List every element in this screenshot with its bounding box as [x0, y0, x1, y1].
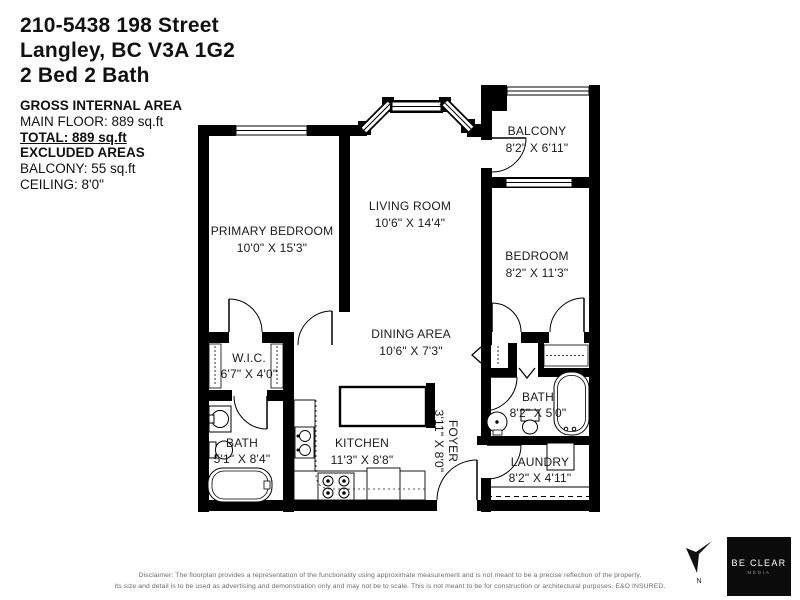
laundry-label: LAUNDRY: [511, 455, 570, 469]
primary-bedroom-window: [231, 125, 312, 136]
hall-opening-arrow: [472, 347, 481, 363]
hall-closet: [544, 345, 588, 366]
primary-bath-label: BATH: [226, 436, 258, 450]
primary-bedroom-dims: 10'0" X 15'3": [237, 241, 307, 255]
primary-bedroom-door: [229, 299, 262, 332]
primary-bedroom-label: PRIMARY BEDROOM: [211, 224, 334, 238]
floor-plan-drawing: PRIMARY BEDROOM 10'0" X 15'3" LIVING ROO…: [0, 0, 800, 600]
hallway-door: [298, 311, 332, 345]
bay-window-top: [390, 100, 443, 113]
bedroom-dims: 8'2" X 11'3": [506, 266, 569, 280]
living-room-label: LIVING ROOM: [369, 199, 451, 213]
bedroom-label: BEDROOM: [505, 249, 568, 263]
laundry-entry-lines: [487, 487, 589, 497]
bedroom-entry-door: [550, 298, 584, 332]
brand-logo-subtitle: MEDIA: [747, 570, 770, 575]
living-room-dims: 10'6" X 14'4": [375, 216, 445, 230]
dining-area-label: DINING AREA: [371, 327, 451, 341]
kitchen-island: [340, 387, 426, 426]
dining-area-dims: 10'6" X 7'3": [379, 344, 443, 358]
foyer-label: FOYER: [446, 420, 460, 462]
kitchen-dims: 11'3" X 8'8": [331, 453, 394, 467]
primary-bath-dims: 5'1" X 8'4": [214, 452, 271, 466]
kitchen-label: KITCHEN: [335, 436, 389, 450]
doors: [229, 138, 584, 500]
disclaimer-line-1: Disclaimer: The floorplan provides a rep…: [55, 570, 725, 581]
bay-window-left: [362, 102, 392, 132]
disclaimer: Disclaimer: The floorplan provides a rep…: [55, 570, 725, 592]
primary-bath-door: [234, 396, 267, 429]
disclaimer-line-2: its size and detail is to be used as adv…: [55, 581, 725, 592]
primary-bathtub: [208, 468, 272, 502]
foyer-dims: 3'11" X 8'0": [432, 410, 446, 473]
laundry-dims: 8'2" X 4'11": [509, 471, 572, 485]
balcony-dims: 8'2" X 6'11": [506, 141, 569, 155]
floorplan-page: 210-5438 198 Street Langley, BC V3A 1G2 …: [0, 0, 800, 600]
main-bathtub: [554, 372, 589, 435]
bedroom-closet-door: [492, 303, 521, 332]
brand-logo: BE CLEAR MEDIA: [727, 537, 791, 596]
bay-window-right: [443, 101, 473, 131]
wic-dims: 6'7" X 4'0": [221, 367, 278, 381]
bath-opening-arrow: [519, 368, 535, 378]
wic-label: W.I.C.: [232, 351, 266, 365]
kitchen-counter-bottom: [294, 468, 425, 500]
balcony-label: BALCONY: [508, 124, 567, 138]
stove: [318, 473, 354, 500]
balcony-railing: [507, 87, 589, 95]
north-arrow-icon: [686, 541, 712, 573]
main-bath-label: BATH: [522, 390, 554, 404]
main-bath-dims: 8'2" X 5'0": [510, 406, 567, 420]
primary-bath-sink: [209, 406, 231, 432]
bedroom-balcony-window: [506, 179, 572, 188]
brand-logo-name: BE CLEAR: [732, 558, 787, 568]
